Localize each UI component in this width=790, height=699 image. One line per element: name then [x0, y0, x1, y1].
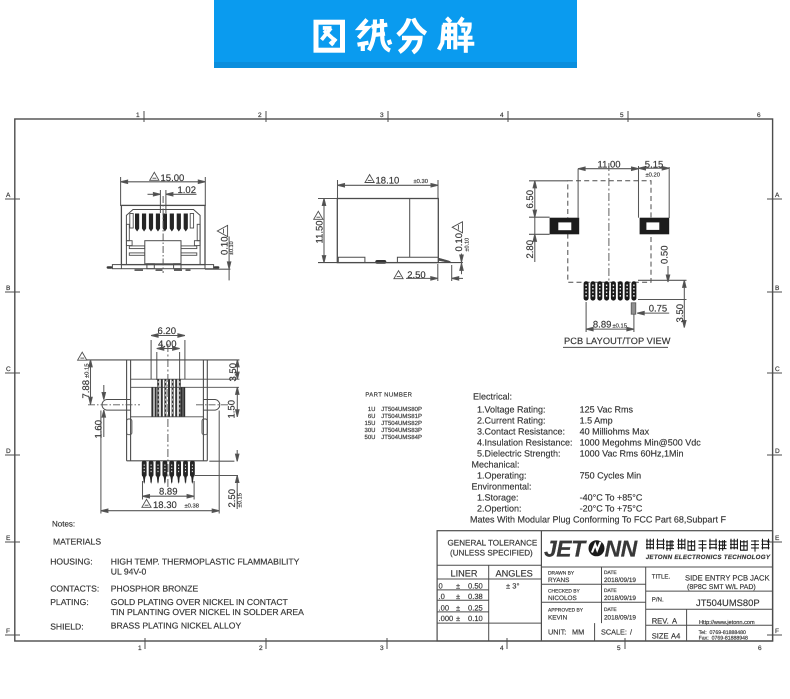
svg-text:APPROVED BY: APPROVED BY [548, 608, 584, 614]
svg-text:B: B [6, 285, 10, 292]
svg-text:15U: 15U [364, 420, 375, 427]
svg-text:F: F [775, 628, 779, 635]
svg-text:-20°C To +75°C: -20°C To +75°C [580, 504, 643, 514]
svg-text:A: A [6, 192, 11, 199]
svg-text:2018/09/19: 2018/09/19 [604, 595, 636, 602]
svg-text:REV.: REV. [652, 617, 669, 626]
svg-text:30U: 30U [364, 427, 375, 434]
svg-text:0.10: 0.10 [454, 233, 465, 252]
svg-text:5.15: 5.15 [645, 160, 664, 171]
svg-text:2: 2 [259, 645, 263, 652]
svg-text:2.50: 2.50 [407, 270, 426, 281]
svg-text:JT504UMS80P: JT504UMS80P [696, 597, 760, 608]
svg-text:Environmental:: Environmental: [472, 482, 532, 492]
svg-text:HIGH TEMP. THERMOPLASTIC FLAMM: HIGH TEMP. THERMOPLASTIC FLAMMABILITY [111, 557, 300, 567]
svg-text:±: ± [456, 592, 460, 601]
svg-text:0: 0 [439, 582, 443, 591]
svg-text:0.38: 0.38 [468, 592, 483, 601]
svg-text:E: E [775, 535, 780, 542]
svg-text:PHOSPHOR BRONZE: PHOSPHOR BRONZE [111, 583, 199, 593]
svg-text:4: 4 [500, 645, 504, 652]
svg-text:3: 3 [380, 112, 384, 119]
svg-text:2018/09/19: 2018/09/19 [604, 615, 636, 622]
svg-text:8.89: 8.89 [593, 319, 612, 330]
svg-text:3.Contact Resistance:: 3.Contact Resistance: [477, 427, 565, 437]
svg-text:DRAWN BY: DRAWN BY [548, 571, 575, 577]
svg-text:DATE: DATE [604, 570, 617, 576]
svg-text:/: / [630, 628, 633, 637]
svg-text:18.10: 18.10 [376, 176, 400, 187]
svg-text:2.Opertion:: 2.Opertion: [477, 504, 522, 514]
svg-text:TIN PLANTING OVER NICKEL IN SO: TIN PLANTING OVER NICKEL IN SOLDER AREA [111, 607, 304, 617]
svg-text:.000: .000 [439, 614, 454, 623]
svg-text:5.Dielectric Strength:: 5.Dielectric Strength: [477, 449, 561, 459]
svg-text:0.10: 0.10 [468, 614, 483, 623]
svg-text:Http://www.jetonn.com: Http://www.jetonn.com [699, 619, 755, 626]
svg-text:(UNLESS SPECIFIED): (UNLESS SPECIFIED) [450, 549, 533, 558]
svg-text:4.00: 4.00 [158, 339, 177, 350]
svg-text:1.50: 1.50 [227, 400, 238, 419]
svg-text:40 Milliohms Max: 40 Milliohms Max [580, 427, 650, 437]
svg-text:.00: .00 [439, 603, 450, 612]
svg-text:0.25: 0.25 [468, 603, 483, 612]
svg-text:NN: NN [605, 536, 638, 562]
svg-text:1.02: 1.02 [178, 185, 197, 196]
svg-text:1.Operating:: 1.Operating: [477, 471, 527, 481]
svg-text:MM: MM [572, 628, 584, 637]
svg-text:DATE: DATE [604, 607, 617, 613]
svg-text:JT504UMS81P: JT504UMS81P [381, 413, 422, 420]
svg-text:CONTACTS:: CONTACTS: [50, 583, 99, 593]
svg-text:SIZE: SIZE [652, 631, 669, 640]
svg-text:1.5 Amp: 1.5 Amp [580, 416, 613, 426]
svg-text:0.75: 0.75 [649, 303, 668, 314]
svg-text:.0: .0 [439, 592, 445, 601]
svg-text:DATE: DATE [604, 588, 617, 594]
svg-text:4: 4 [500, 112, 504, 119]
svg-text:NICOLOS: NICOLOS [548, 595, 577, 602]
svg-text:JT504UMS83P: JT504UMS83P [381, 427, 422, 434]
svg-text:11.50: 11.50 [315, 220, 326, 243]
svg-text:JT504UMS84P: JT504UMS84P [381, 434, 422, 441]
svg-text:15.00: 15.00 [161, 173, 185, 184]
svg-text:2: 2 [258, 112, 262, 119]
svg-text:CHECKED BY: CHECKED BY [548, 589, 581, 595]
svg-text:A4: A4 [671, 631, 680, 640]
svg-text:KEVIN: KEVIN [548, 615, 568, 622]
svg-text:3: 3 [380, 645, 384, 652]
svg-text:±0.10: ±0.10 [229, 241, 235, 255]
svg-text:2.Current Rating:: 2.Current Rating: [477, 416, 546, 426]
svg-text:Fax: 0769-81888948: Fax: 0769-81888948 [699, 636, 748, 642]
svg-text:D: D [6, 448, 11, 455]
svg-text:A: A [672, 617, 678, 626]
svg-text:±: ± [456, 582, 460, 591]
svg-text:Notes:: Notes: [52, 520, 75, 529]
svg-text:±: ± [456, 614, 460, 623]
svg-text:C: C [6, 366, 11, 373]
svg-text:± 3°: ± 3° [506, 582, 520, 591]
svg-text:125 Vac Rms: 125 Vac Rms [580, 405, 634, 415]
svg-text:B: B [775, 285, 779, 292]
svg-text:18.30: 18.30 [153, 500, 177, 511]
svg-text:±0.20: ±0.20 [646, 172, 660, 179]
svg-text:F: F [6, 628, 10, 635]
svg-text:750 Cycles Min: 750 Cycles Min [580, 471, 642, 481]
svg-text:Electrical:: Electrical: [473, 392, 512, 402]
svg-text:4.Insulation Resistance:: 4.Insulation Resistance: [477, 438, 573, 448]
svg-text:3.50: 3.50 [228, 363, 239, 382]
svg-text:±0.30: ±0.30 [414, 178, 428, 185]
svg-text:MATERIALS: MATERIALS [53, 537, 101, 547]
svg-text:Mates With Modular Plug Confor: Mates With Modular Plug Conforming To FC… [470, 515, 726, 525]
svg-text:RYANS: RYANS [548, 577, 569, 584]
svg-text:6.50: 6.50 [525, 190, 536, 209]
svg-text:UL 94V-0: UL 94V-0 [111, 567, 147, 577]
svg-text:0.50: 0.50 [468, 582, 483, 591]
svg-text:PCB LAYOUT/TOP VIEW: PCB LAYOUT/TOP VIEW [564, 336, 671, 346]
svg-text:P/N.: P/N. [652, 597, 664, 604]
svg-text:3.50: 3.50 [675, 304, 686, 323]
svg-text:PART NUMBER: PART NUMBER [365, 391, 412, 398]
svg-text:±0.15: ±0.15 [236, 493, 243, 507]
svg-text:PLATING:: PLATING: [50, 597, 89, 607]
svg-text:2018/09/19: 2018/09/19 [604, 577, 636, 584]
svg-text:BRASS PLATING NICKEL ALLOY: BRASS PLATING NICKEL ALLOY [111, 621, 242, 631]
svg-text:-40°C To +85°C: -40°C To +85°C [580, 493, 643, 503]
svg-text:HOUSING:: HOUSING: [50, 557, 92, 567]
svg-text:Mechanical:: Mechanical: [472, 460, 520, 470]
svg-text:1: 1 [136, 112, 140, 119]
svg-text:5: 5 [617, 645, 621, 652]
svg-text:SHIELD:: SHIELD: [50, 621, 83, 631]
svg-text:SIDE ENTRY PCB JACK: SIDE ENTRY PCB JACK [685, 574, 770, 583]
svg-text:1000 Megohms Min@500 Vdc: 1000 Megohms Min@500 Vdc [580, 438, 702, 448]
svg-text:6.20: 6.20 [158, 326, 177, 337]
svg-text:C: C [775, 366, 780, 373]
svg-text:2.50: 2.50 [227, 489, 238, 508]
svg-text:LINER: LINER [451, 569, 478, 579]
svg-text:SCALE:: SCALE: [601, 628, 627, 637]
svg-text:JETONN ELECTRONICS TECHNOLOGY: JETONN ELECTRONICS TECHNOLOGY [646, 554, 771, 561]
svg-text:JT504UMS82P: JT504UMS82P [381, 420, 422, 427]
svg-text:±0.10: ±0.10 [465, 238, 471, 252]
svg-text:(8P8C SMT W/L PAD): (8P8C SMT W/L PAD) [687, 583, 756, 591]
svg-text:JET: JET [544, 536, 587, 562]
svg-text:UNIT:: UNIT: [548, 628, 566, 637]
svg-text:2.80: 2.80 [525, 240, 536, 259]
svg-text:1.Storage:: 1.Storage: [477, 493, 519, 503]
svg-text:8.89: 8.89 [159, 486, 178, 497]
svg-text:GOLD PLATING OVER NICKEL IN CO: GOLD PLATING OVER NICKEL IN CONTACT [111, 597, 289, 607]
svg-text:0.50: 0.50 [660, 246, 671, 265]
svg-text:ANGLES: ANGLES [496, 569, 533, 579]
svg-text:5: 5 [620, 112, 624, 119]
svg-text:TITLE.: TITLE. [652, 574, 671, 581]
svg-text:GENERAL TOLERANCE: GENERAL TOLERANCE [448, 539, 538, 548]
svg-text:1000 Vac Rms 60Hz,1Min: 1000 Vac Rms 60Hz,1Min [580, 449, 684, 459]
svg-text:±0.38: ±0.38 [185, 502, 199, 509]
svg-text:±0.15: ±0.15 [613, 322, 627, 329]
svg-text:1.Voltage Rating:: 1.Voltage Rating: [477, 405, 546, 415]
svg-text:1.60: 1.60 [94, 420, 105, 439]
svg-text:JT504UMS80P: JT504UMS80P [381, 406, 422, 413]
svg-text:E: E [6, 535, 11, 542]
svg-text:6: 6 [757, 112, 761, 119]
svg-text:6U: 6U [368, 413, 376, 420]
svg-text:D: D [775, 448, 780, 455]
svg-text:6: 6 [758, 645, 762, 652]
svg-text:A: A [775, 192, 780, 199]
svg-text:±: ± [456, 603, 460, 612]
svg-text:1: 1 [138, 645, 142, 652]
svg-text:1U: 1U [368, 406, 376, 413]
svg-text:50U: 50U [364, 434, 375, 441]
